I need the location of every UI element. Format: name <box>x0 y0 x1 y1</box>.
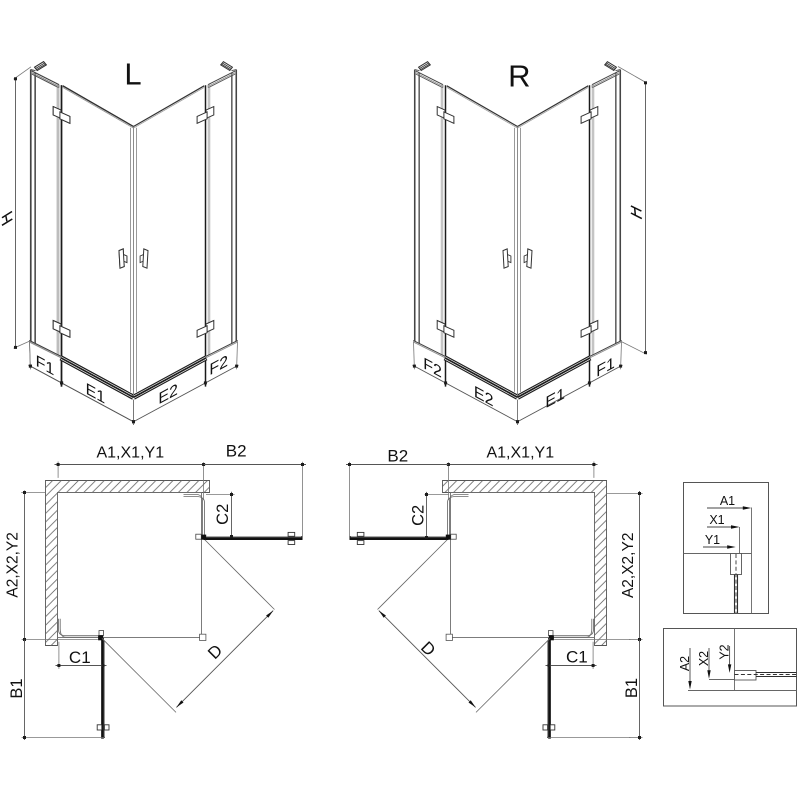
svg-text:A1,X1,Y1: A1,X1,Y1 <box>96 444 164 461</box>
svg-text:B2: B2 <box>226 442 247 461</box>
svg-text:C1: C1 <box>69 648 91 667</box>
svg-text:B2: B2 <box>387 447 408 466</box>
svg-text:R: R <box>508 59 530 94</box>
svg-text:A2: A2 <box>678 656 692 671</box>
svg-text:B1: B1 <box>8 678 26 698</box>
svg-text:C1: C1 <box>566 648 588 667</box>
svg-text:A1: A1 <box>720 494 735 508</box>
svg-text:Y2: Y2 <box>717 644 731 659</box>
svg-text:C2: C2 <box>214 504 232 525</box>
svg-text:C2: C2 <box>409 505 427 526</box>
svg-text:L: L <box>124 57 141 92</box>
svg-text:A2,X2,Y2: A2,X2,Y2 <box>4 532 21 598</box>
svg-text:A2,X2,Y2: A2,X2,Y2 <box>620 533 637 599</box>
svg-text:X2: X2 <box>697 651 711 666</box>
svg-text:A1,X1,Y1: A1,X1,Y1 <box>486 444 554 461</box>
svg-text:B1: B1 <box>623 678 641 698</box>
svg-text:X1: X1 <box>709 513 724 527</box>
svg-text:Y1: Y1 <box>705 533 720 547</box>
